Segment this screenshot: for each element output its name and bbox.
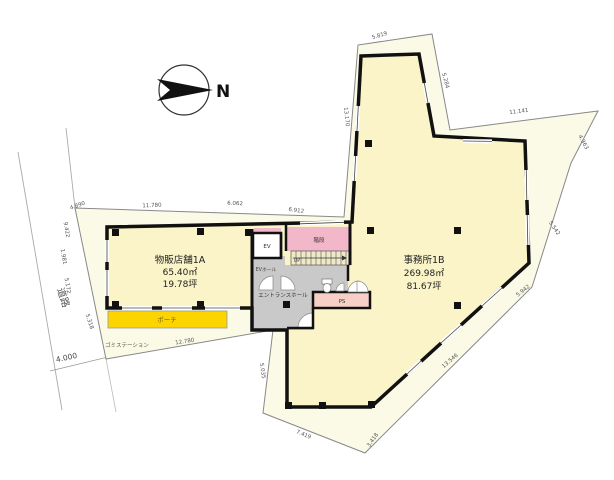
retail-area-m2: 65.40㎡ [163, 267, 198, 278]
dim-tower-left: 13.170 [342, 107, 350, 127]
ev-label: EV [263, 244, 270, 250]
dim-left5: 5.318 [84, 313, 95, 330]
dim-tower-top: 5.819 [371, 31, 388, 41]
retail-name: 物販店舗1A [155, 254, 206, 266]
dim-top3: 6.912 [288, 207, 304, 215]
dim-right1: 11.141 [509, 108, 529, 116]
office-name: 事務所1B [403, 254, 444, 266]
dim-left3: 1.981 [59, 249, 68, 266]
retail-area-tsubo: 19.78坪 [163, 279, 198, 290]
dim-left2: 9.422 [62, 222, 71, 239]
north-letter: N [216, 82, 230, 102]
entrance-hall-label: エントランスホール [258, 292, 308, 299]
stairs-label: 階段 [313, 236, 325, 244]
dim-top1: 11.780 [142, 203, 162, 210]
office-area-tsubo: 81.67坪 [407, 281, 442, 292]
toilet-fixture [322, 279, 332, 293]
dim-bottom2: 5.035 [258, 363, 266, 380]
office-area-m2: 269.98㎡ [404, 268, 445, 279]
dim-road-width: 4.000 [55, 351, 78, 364]
floor-plan-page: 物販店舗1A 65.40㎡ 19.78坪 事務所1B 269.98㎡ 81.67… [0, 0, 614, 480]
ps-label: PS [339, 299, 346, 305]
ev-hall-label: EVホール [256, 267, 277, 273]
north-compass: N [157, 65, 230, 115]
dim-top2: 6.062 [227, 201, 243, 208]
porch-label: ポーチ [157, 316, 177, 324]
floor-plan-svg: 物販店舗1A 65.40㎡ 19.78坪 事務所1B 269.98㎡ 81.67… [0, 0, 614, 480]
garbage-station-label: ゴミステーション [105, 341, 149, 349]
stairs-up-label: UP [294, 258, 301, 264]
